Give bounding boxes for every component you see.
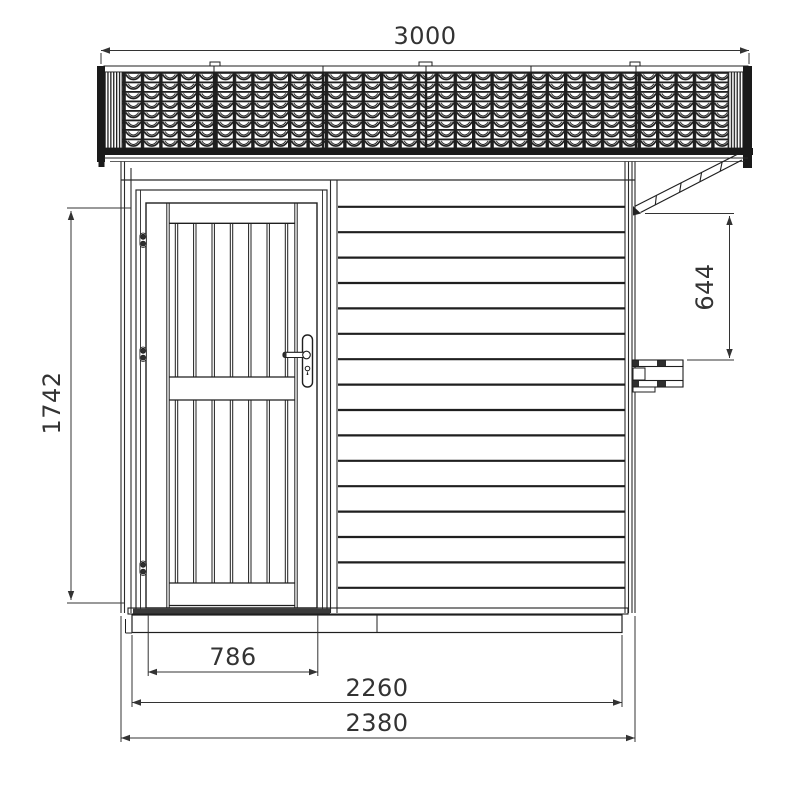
roof-eave-band [97, 148, 753, 155]
door-threshold [133, 609, 330, 614]
corner-trim-left [121, 162, 131, 614]
dim-door-width-label: 786 [209, 643, 256, 671]
roof-end-hatch-left [104, 72, 122, 148]
canopy-brace [633, 155, 742, 216]
dim-base-width-label: 2260 [345, 674, 408, 702]
door [136, 190, 327, 610]
dim-roof-width-label: 3000 [393, 22, 456, 50]
roof-end-cap-right [743, 66, 752, 168]
roof [97, 62, 753, 168]
brace-foot [633, 206, 641, 216]
dim-overall-width-label: 2380 [345, 709, 408, 737]
base [126, 608, 629, 633]
drawing-canvas: 3000 1742 644 786 2260 2380 [0, 0, 800, 800]
shed-elevation-drawing: 3000 1742 644 786 2260 2380 [0, 0, 800, 800]
dim-canopy-drop-label: 644 [691, 263, 719, 310]
side-bracket [633, 360, 683, 392]
dim-door-height-label: 1742 [38, 371, 66, 434]
siding-boards [338, 207, 625, 588]
roof-end-cap-left [97, 66, 105, 162]
roof-end-foot-left [99, 155, 105, 167]
door-leaf [146, 203, 317, 608]
dimension-canopy-drop [645, 214, 734, 361]
wall-divider [331, 180, 338, 613]
